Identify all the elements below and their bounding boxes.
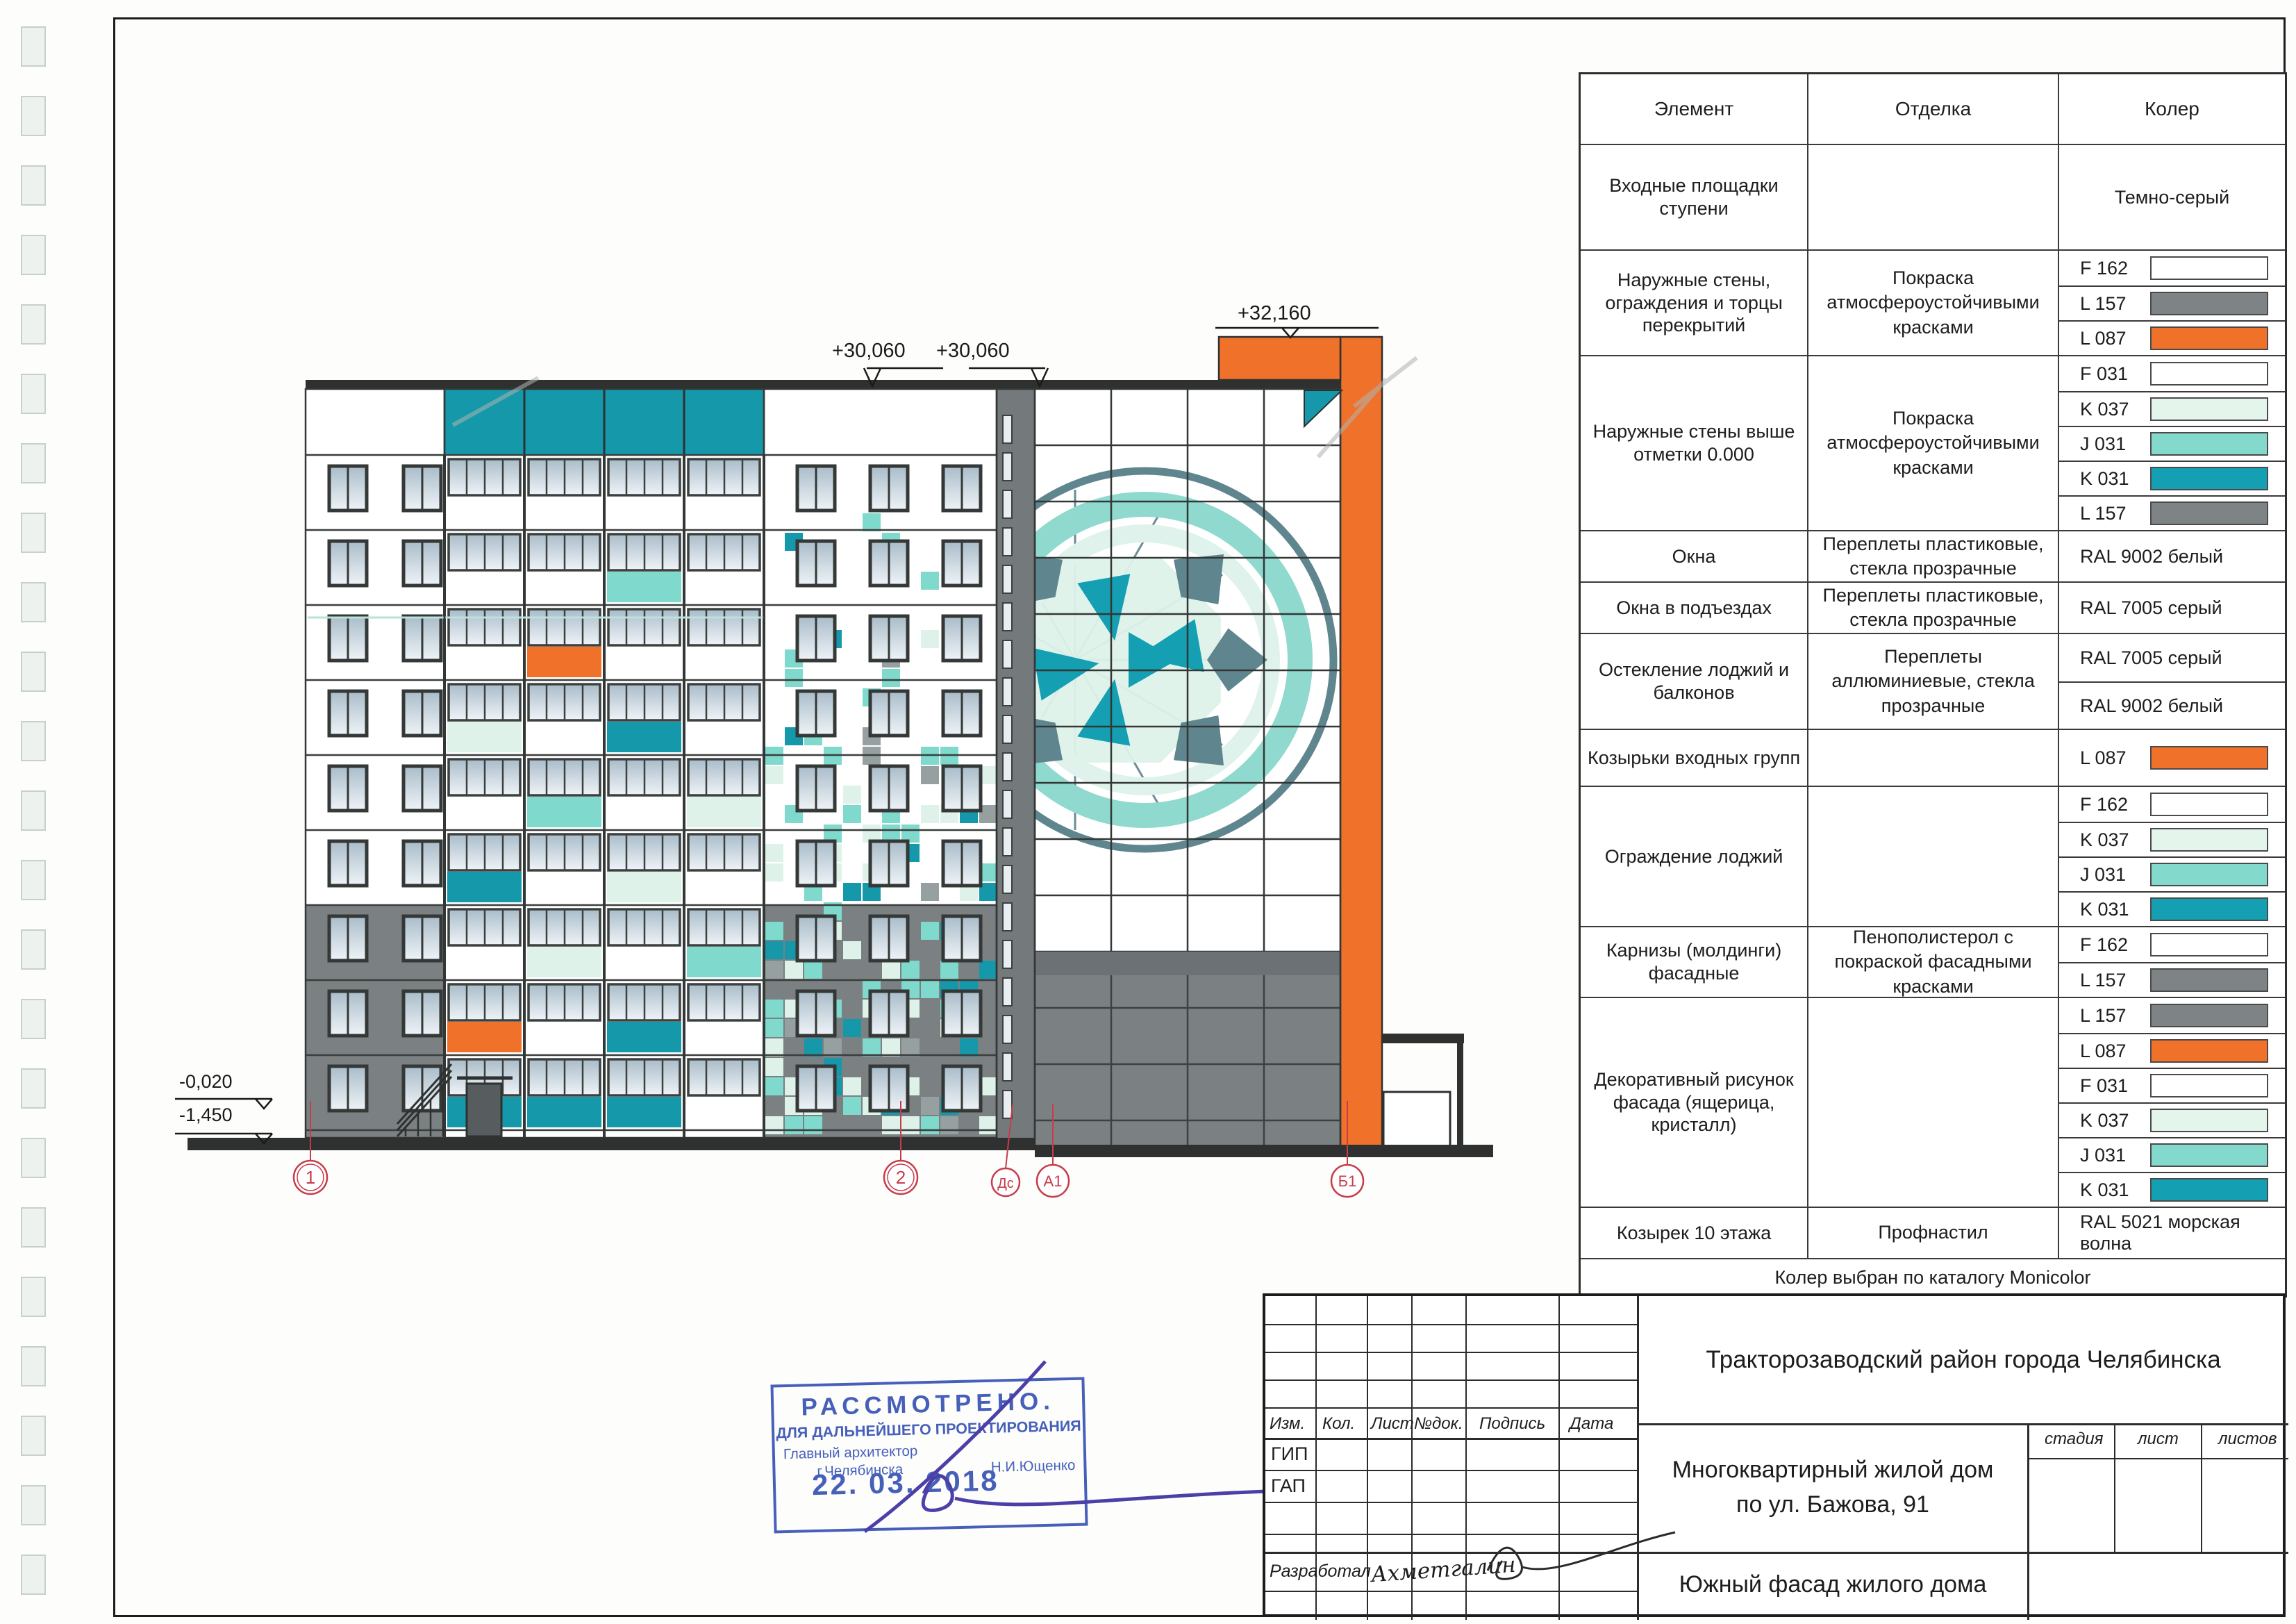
col-data: Дата: [1570, 1414, 1613, 1434]
approval-stamp: РАССМОТРЕНО. ДЛЯ ДАЛЬНЕЙШЕГО ПРОЕКТИРОВА…: [770, 1377, 1088, 1534]
row-gap: ГАП: [1271, 1475, 1306, 1497]
color-label: Темно-серый: [2115, 187, 2230, 208]
color-label: RAL 5021 морская волна: [2059, 1211, 2285, 1254]
color-row: J 031: [2059, 856, 2285, 891]
level-roof-label-1: +30,060: [832, 340, 906, 362]
district-title: Тракторозаводский район города Челябинск…: [1638, 1296, 2288, 1423]
color-row: L 157: [2059, 962, 2285, 997]
element-cell: Карнизы (молдинги) фасадные: [1581, 927, 1808, 997]
color-row: L 157: [2059, 285, 2285, 320]
finish-table-row: Ограждение лоджийF 162K 037J 031K 031: [1581, 786, 2285, 926]
finish-cell: Покраска атмосфероустойчивыми красками: [1808, 356, 2059, 530]
color-label: K 031: [2059, 899, 2129, 920]
color-row: RAL 7005 серый: [2059, 583, 2285, 633]
developer-signature-name: Ахметгалин: [1370, 1552, 1517, 1587]
header-finish: Отделка: [1808, 74, 2059, 144]
finish-cell: Переплеты аллюминиевые, стекла прозрачны…: [1808, 634, 2059, 729]
color-row: K 037: [2059, 1102, 2285, 1137]
ground-line-left: [188, 1138, 1035, 1150]
col-doc: №док.: [1414, 1414, 1463, 1434]
color-label: K 037: [2059, 1110, 2129, 1132]
color-row: K 037: [2059, 391, 2285, 426]
finish-table-row: Наружные стены, ограждения и торцы перек…: [1581, 249, 2285, 355]
finish-cell: Покраска атмосфероустойчивыми красками: [1808, 251, 2059, 355]
element-cell: Козырьки входных групп: [1581, 730, 1808, 786]
color-label: J 031: [2059, 864, 2126, 886]
color-label: RAL 9002 белый: [2059, 695, 2223, 717]
color-swatch: [2150, 397, 2268, 421]
color-label: K 031: [2059, 468, 2129, 490]
color-label: L 087: [2059, 747, 2127, 769]
axis-ds: Дс: [997, 1176, 1014, 1191]
orange-strip: [1340, 337, 1382, 1147]
stamp-line2: ДЛЯ ДАЛЬНЕЙШЕГО ПРОЕКТИРОВАНИЯ: [774, 1418, 1083, 1443]
finish-table-row: Окна в подъездахПереплеты пластиковые, с…: [1581, 581, 2285, 633]
color-swatch: [2150, 1178, 2268, 1202]
color-row: K 031: [2059, 1172, 2285, 1207]
color-row: J 031: [2059, 1137, 2285, 1172]
color-swatch: [2150, 968, 2268, 992]
level-roof-label-2: +30,060: [936, 340, 1010, 362]
sheet-title: Южный фасад жилого дома: [1638, 1552, 2027, 1617]
finish-table-row: Карнизы (молдинги) фасадныеПенополистеро…: [1581, 926, 2285, 997]
color-label: K 031: [2059, 1179, 2129, 1201]
facade-beam: [1035, 952, 1340, 975]
color-row: L 157: [2059, 495, 2285, 530]
color-row: K 031: [2059, 891, 2285, 926]
header-color: Колер: [2059, 74, 2285, 144]
color-swatch: [2150, 828, 2268, 852]
color-swatch: [2150, 362, 2268, 386]
color-swatch: [2150, 897, 2268, 921]
color-swatch: [2150, 467, 2268, 490]
finish-color-table: Элемент Отделка Колер Входные площадки с…: [1579, 72, 2287, 1298]
color-swatch: [2150, 863, 2268, 886]
object-title-line1: Многоквартирный жилой дом: [1672, 1453, 1994, 1487]
element-cell: Наружные стены выше отметки 0.000: [1581, 356, 1808, 530]
color-swatch: [2150, 746, 2268, 770]
color-label: F 031: [2059, 1075, 2128, 1097]
element-cell: Окна: [1581, 531, 1808, 581]
finish-table-footer: Колер выбран по каталогу Monicolor: [1581, 1258, 2285, 1295]
color-row: RAL 9002 белый: [2059, 531, 2285, 581]
color-label: K 037: [2059, 399, 2129, 420]
color-label: J 031: [2059, 1145, 2126, 1166]
color-swatch: [2150, 1039, 2268, 1063]
finish-cell: [1808, 787, 2059, 926]
color-row: L 157: [2059, 998, 2285, 1033]
col-izm: Изм.: [1270, 1414, 1305, 1434]
orange-tower-top: [1219, 337, 1340, 380]
color-label: L 157: [2059, 970, 2127, 991]
row-gip: ГИП: [1271, 1443, 1308, 1465]
object-title-line2: по ул. Бажова, 91: [1736, 1488, 1929, 1522]
element-cell: Ограждение лоджий: [1581, 787, 1808, 926]
color-label: F 031: [2059, 363, 2128, 385]
finish-cell: Переплеты пластиковые, стекла прозрачные: [1808, 531, 2059, 581]
color-row: L 087: [2059, 320, 2285, 355]
listov-col: листов: [2218, 1430, 2277, 1449]
color-swatch: [2150, 326, 2268, 350]
element-cell: Остекление лоджий и балконов: [1581, 634, 1808, 729]
stage-col: стадия: [2045, 1430, 2104, 1449]
color-row: F 031: [2059, 1068, 2285, 1102]
element-cell: Козырек 10 этажа: [1581, 1208, 1808, 1258]
color-swatch: [2150, 1109, 2268, 1132]
finish-cell: [1808, 998, 2059, 1207]
stamp-line1: РАССМОТРЕНО.: [774, 1387, 1083, 1423]
object-title: Многоквартирный жилой дом по ул. Бажова,…: [1638, 1423, 2027, 1552]
finish-cell: [1808, 145, 2059, 249]
color-row: F 162: [2059, 927, 2285, 962]
finish-cell: Переплеты пластиковые, стекла прозрачные: [1808, 583, 2059, 633]
color-swatch: [2150, 502, 2268, 525]
axis-a1: А1: [1044, 1173, 1063, 1190]
ground-line-right: [1035, 1145, 1493, 1157]
finish-cell: Пенополистерол с покраской фасадными кра…: [1808, 927, 2059, 997]
axis-b1: Б1: [1338, 1173, 1357, 1190]
finish-table-row: Остекление лоджий и балконовПереплеты ал…: [1581, 633, 2285, 729]
color-label: RAL 7005 серый: [2059, 597, 2222, 619]
level-zero-label: -0,020: [179, 1071, 233, 1092]
color-row: L 087: [2059, 1033, 2285, 1068]
entrance-door: [467, 1084, 501, 1136]
color-label: F 162: [2059, 794, 2128, 815]
list-col: лист: [2138, 1430, 2179, 1449]
color-swatch: [2150, 793, 2268, 816]
color-label: L 157: [2059, 503, 2127, 524]
level-top-label: +32,160: [1238, 302, 1311, 324]
color-swatch: [2150, 1004, 2268, 1027]
color-label: L 157: [2059, 1005, 2127, 1027]
finish-cell: Профнастил: [1808, 1208, 2059, 1258]
axis-1: 1: [306, 1167, 315, 1188]
color-label: F 162: [2059, 934, 2128, 956]
finish-table-row: Входные площадки ступениТемно-серый: [1581, 144, 2285, 249]
color-row: F 031: [2059, 356, 2285, 391]
stamp-date: 22. 03. 2018: [811, 1464, 999, 1502]
level-ground-label: -1,450: [179, 1104, 233, 1125]
color-swatch: [2150, 1074, 2268, 1097]
finish-table-row: Наружные стены выше отметки 0.000Покраск…: [1581, 355, 2285, 530]
color-label: RAL 9002 белый: [2059, 546, 2223, 567]
finish-table-row: Козырек 10 этажаПрофнастилRAL 5021 морск…: [1581, 1207, 2285, 1258]
roof-line: [306, 380, 1340, 389]
color-label: L 157: [2059, 293, 2127, 315]
color-row: RAL 9002 белый: [2059, 681, 2285, 729]
axis-2: 2: [896, 1167, 906, 1188]
color-label: F 162: [2059, 258, 2128, 279]
header-element: Элемент: [1581, 74, 1808, 144]
col-podpis: Подпись: [1479, 1414, 1545, 1434]
finish-table-row: ОкнаПереплеты пластиковые, стекла прозра…: [1581, 530, 2285, 581]
color-row: K 031: [2059, 461, 2285, 495]
color-label: L 087: [2059, 1041, 2127, 1062]
col-list: Лист: [1371, 1414, 1414, 1434]
color-row: J 031: [2059, 426, 2285, 461]
stamp-architect-name: Н.И.Ющенко: [991, 1457, 1076, 1476]
color-row: L 087: [2059, 730, 2285, 786]
color-row: F 162: [2059, 251, 2285, 285]
finish-table-header: Элемент Отделка Колер: [1581, 74, 2285, 144]
drawing-sheet: +32,160 +30,060 +30,060 -0,020 -1,450: [0, 0, 2296, 1624]
color-row: RAL 5021 морская волна: [2059, 1208, 2285, 1258]
color-swatch: [2150, 432, 2268, 456]
finish-table-row: Декоративный рисунок фасада (ящерица, кр…: [1581, 997, 2285, 1207]
color-swatch: [2150, 256, 2268, 280]
color-row: F 162: [2059, 787, 2285, 822]
col-kol: Кол.: [1322, 1414, 1355, 1434]
color-row: RAL 7005 серый: [2059, 634, 2285, 681]
color-label: RAL 7005 серый: [2059, 647, 2222, 669]
color-swatch: [2150, 1143, 2268, 1167]
color-label: K 037: [2059, 829, 2129, 851]
title-block: Изм. Кол. Лист №док. Подпись Дата ГИП ГА…: [1263, 1293, 2286, 1617]
color-swatch: [2150, 933, 2268, 956]
element-cell: Входные площадки ступени: [1581, 145, 1808, 249]
color-row: K 037: [2059, 822, 2285, 856]
finish-cell: [1808, 730, 2059, 786]
color-label: L 087: [2059, 328, 2127, 349]
finish-table-row: Козырьки входных группL 087: [1581, 729, 2285, 786]
element-cell: Декоративный рисунок фасада (ящерица, кр…: [1581, 998, 1808, 1207]
element-cell: Окна в подъездах: [1581, 583, 1808, 633]
developer-label: Разработал: [1270, 1561, 1371, 1582]
color-swatch: [2150, 292, 2268, 315]
right-canopy: [1382, 1034, 1464, 1147]
color-label: J 031: [2059, 433, 2126, 455]
element-cell: Наружные стены, ограждения и торцы перек…: [1581, 251, 1808, 355]
color-row: Темно-серый: [2059, 145, 2285, 249]
